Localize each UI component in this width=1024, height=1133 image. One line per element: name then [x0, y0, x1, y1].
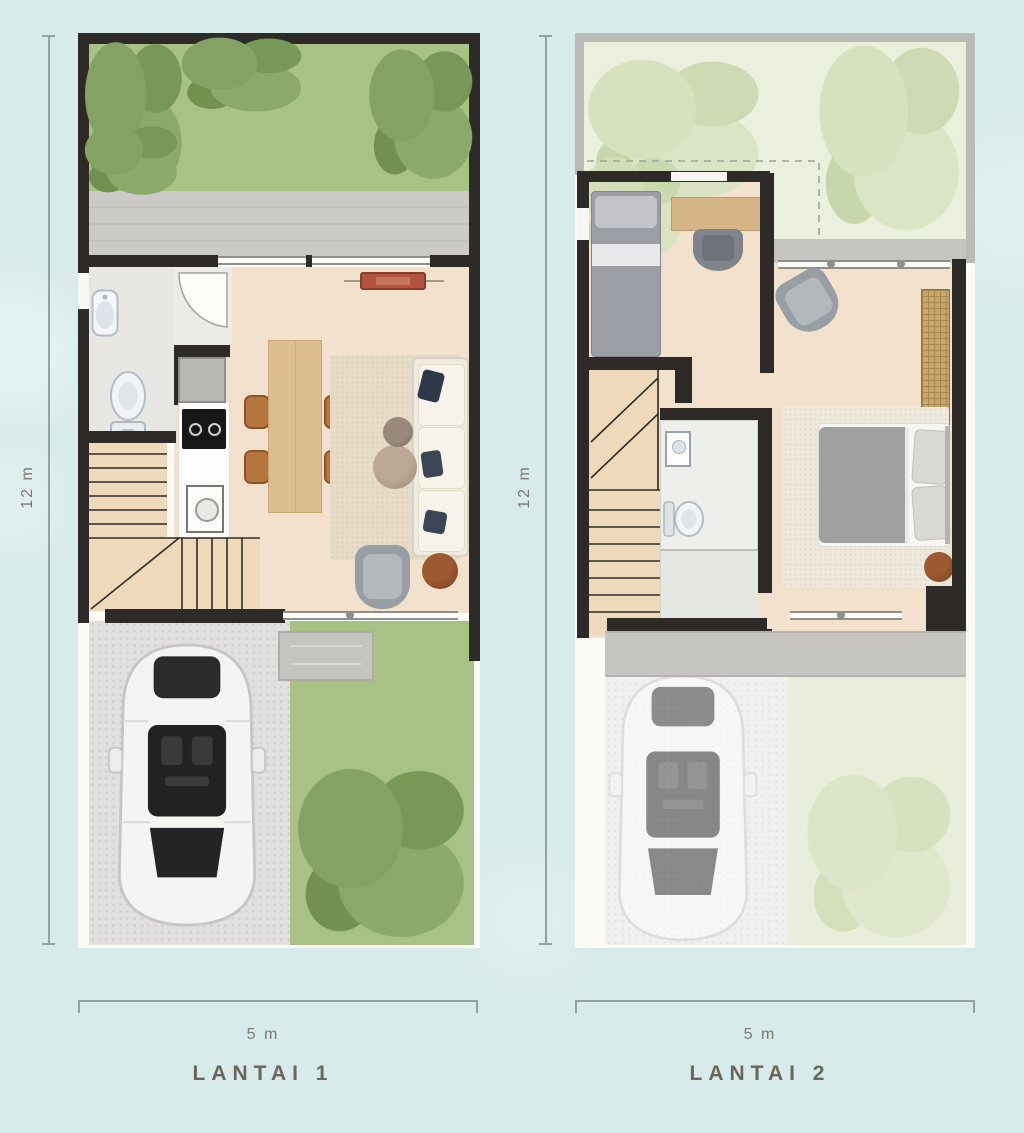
planter-pot	[422, 553, 458, 589]
bathroom-top-wall	[660, 408, 758, 420]
terrace-path	[89, 191, 469, 262]
car-top-view-ghost	[605, 669, 761, 947]
table-plank-line	[295, 341, 296, 512]
coffee-table	[373, 445, 417, 489]
washbasin	[91, 289, 119, 337]
bottom-wall	[607, 618, 767, 632]
kitchen-counter-top	[178, 357, 226, 403]
carport-canopy-roof	[605, 631, 966, 677]
bathroom-door-arc	[175, 271, 231, 329]
door-handle	[346, 611, 354, 619]
entry-bench	[360, 272, 426, 290]
armchair-seat	[782, 275, 836, 329]
bathroom-window	[78, 273, 89, 309]
bench-slat	[376, 277, 410, 285]
plan1-height-dimension-line	[42, 35, 55, 945]
tree-faint	[815, 39, 967, 239]
exterior-wall-left	[577, 171, 589, 638]
car-top-view	[106, 631, 268, 939]
bedroom-window-bottom	[790, 611, 902, 620]
dining-chair	[244, 450, 270, 484]
tree	[366, 45, 478, 185]
washbasin	[665, 431, 691, 467]
balcony-window	[778, 260, 950, 269]
double-bed	[818, 423, 950, 547]
armchair-seat	[363, 554, 402, 599]
side-table	[383, 417, 413, 447]
basin-bowl	[672, 440, 686, 454]
ghost-tree	[803, 769, 958, 945]
sofa-pillow	[420, 450, 443, 479]
staircase-1	[89, 440, 260, 611]
ghost-car-wrapper	[605, 669, 761, 947]
dining-chair	[244, 395, 270, 429]
carport-wall	[105, 609, 285, 623]
plan1-width-dimension-line	[78, 1000, 478, 1013]
tree	[293, 763, 473, 945]
roof-edge-top	[575, 33, 975, 42]
bedroom2-window	[671, 172, 727, 181]
plan2-height-dimension-label: 12 m	[516, 457, 534, 517]
bedroom2-side-wall	[760, 173, 774, 373]
bed-sheet-fold	[592, 244, 660, 266]
front-window	[218, 256, 430, 265]
planter-pot	[924, 552, 954, 582]
plan2-floorplan	[575, 33, 975, 948]
window-handle	[897, 260, 905, 268]
exterior-wall-right	[952, 259, 966, 638]
tree	[82, 123, 182, 198]
sofa-pillow	[422, 509, 447, 534]
stair-wall-post	[675, 357, 692, 403]
window-handle	[837, 611, 845, 619]
dining-table	[268, 340, 322, 513]
plan2-width-dimension-line	[575, 1000, 975, 1013]
side-window	[577, 208, 589, 240]
backyard-sliding-door	[283, 611, 458, 620]
roof-edge-right	[966, 33, 975, 263]
staircase-2	[589, 370, 660, 635]
study-desk	[671, 197, 768, 231]
front-wall	[78, 255, 218, 267]
bed-headboard	[945, 426, 950, 544]
front-wall	[430, 255, 480, 267]
plan2-width-dimension-label: 5 m	[545, 1026, 975, 1044]
plan1-height-dimension-label: 12 m	[19, 457, 37, 517]
armchair	[355, 545, 410, 609]
sofa	[412, 357, 469, 557]
plan1-floorplan	[78, 33, 480, 948]
tree	[178, 35, 308, 115]
window-mullion	[306, 255, 312, 267]
bed-duvet	[819, 427, 909, 543]
floorplan-canvas: 12 m	[0, 0, 1024, 1133]
toilet	[663, 499, 705, 539]
window-handle	[827, 260, 835, 268]
plan1-width-dimension-label: 5 m	[48, 1026, 478, 1044]
bathroom-wall	[89, 431, 176, 443]
plan2-height-dimension-line	[539, 35, 552, 945]
desk-chair	[693, 229, 743, 271]
single-bed	[591, 191, 661, 357]
desk-chair-seat	[702, 235, 734, 261]
bathroom-2	[660, 420, 758, 638]
stove-burner	[189, 423, 202, 436]
garden-table	[278, 631, 374, 681]
bed-pillow	[595, 196, 657, 228]
plan1-title: LANTAI 1	[48, 1062, 478, 1086]
stove-burner	[208, 423, 221, 436]
plan2-title: LANTAI 2	[545, 1062, 975, 1086]
bedroom2-bottom-wall	[588, 357, 688, 370]
